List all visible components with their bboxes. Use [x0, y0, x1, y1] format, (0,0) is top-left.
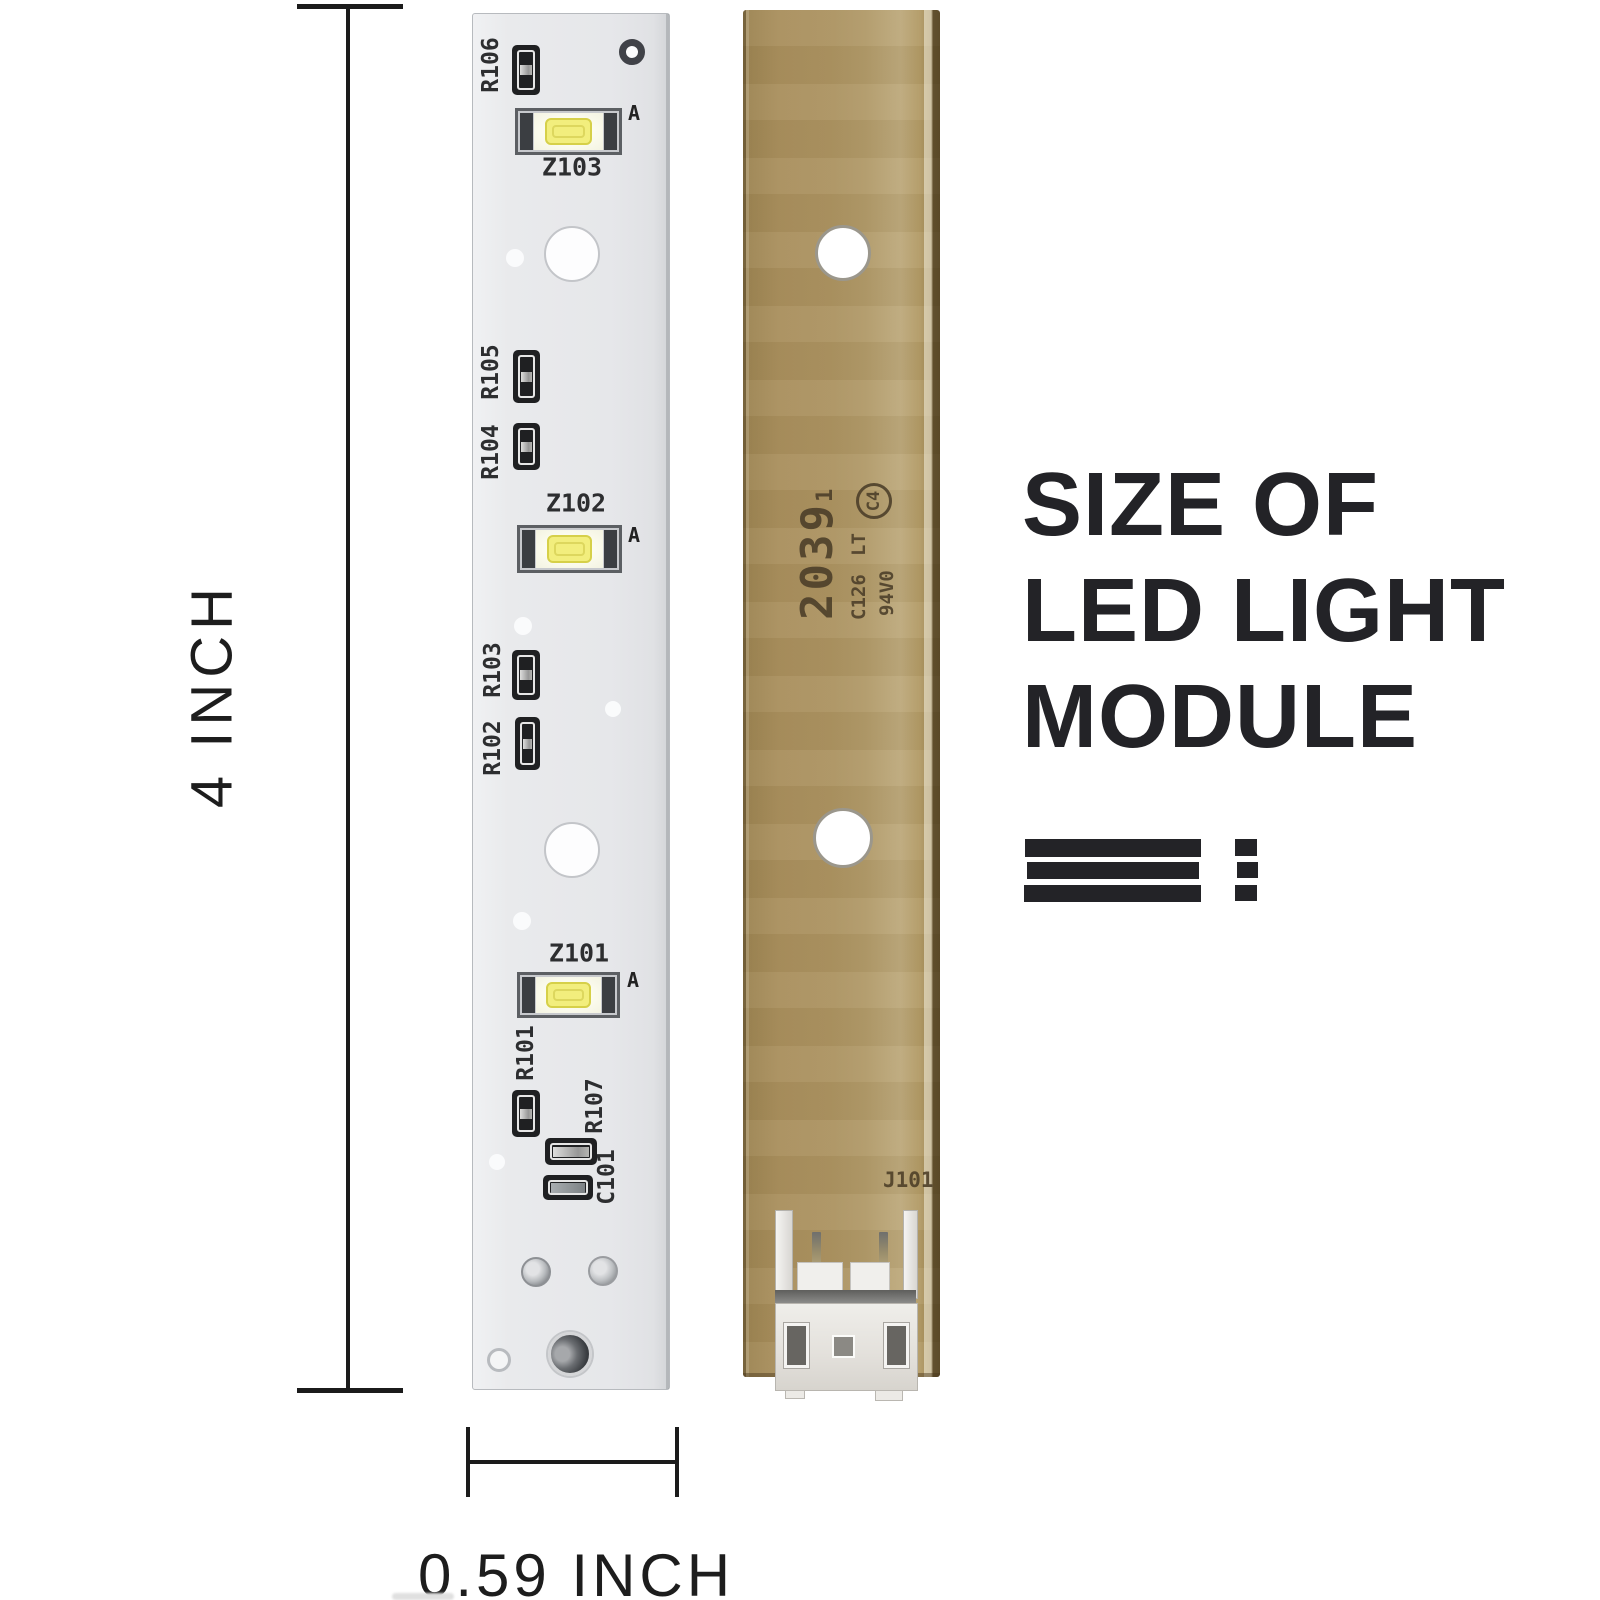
height-dimension-cap-bottom [297, 1388, 403, 1393]
width-dimension-label: 0.59 INCH [418, 1541, 734, 1600]
ref-r105: R105 [478, 344, 504, 399]
solder-pad [521, 1257, 551, 1287]
led-electrode [522, 530, 535, 568]
led-electrode [602, 977, 615, 1013]
led-phosphor [536, 977, 601, 1013]
title-line-3: MODULE [1022, 664, 1506, 770]
ref-c101: C101 [594, 1149, 620, 1204]
resistor-r106 [512, 45, 540, 95]
connector-base-band [775, 1290, 916, 1303]
led-phosphor [536, 530, 603, 568]
back-board-hole [815, 225, 871, 281]
connector-side-wall [903, 1210, 918, 1299]
connector-j101 [775, 1210, 918, 1400]
screw-hole [548, 1332, 592, 1376]
decoration-square [1235, 839, 1257, 856]
anode-mark-z103: A [628, 101, 640, 125]
reflection-dot [506, 249, 524, 267]
height-dimension-label: 4 INCH [179, 582, 246, 808]
date-code-marking: 20391 [792, 486, 843, 620]
reflection-dot [605, 701, 621, 717]
led-electrode [604, 113, 617, 150]
reflection-dot [513, 912, 531, 930]
height-dimension-cap-top [297, 4, 403, 9]
led-electrode [604, 530, 617, 568]
led-z102 [517, 525, 622, 573]
connector-slot [784, 1323, 809, 1368]
certification-mark: C4 [856, 483, 892, 519]
height-dimension-line [346, 6, 350, 1390]
led-electrode [520, 113, 533, 150]
width-dimension-tick-right [675, 1427, 679, 1497]
connector-tab [875, 1390, 903, 1401]
ref-r106: R106 [478, 37, 504, 92]
resistor-r105 [513, 350, 540, 403]
resistor-r102 [515, 717, 540, 770]
ref-r104: R104 [478, 424, 504, 479]
cutoff-artifact [392, 1593, 454, 1600]
lot-code-marking: C126 [848, 574, 870, 620]
connector-tab [785, 1390, 805, 1399]
decoration-bar [1025, 839, 1201, 857]
decoration-bar [1024, 885, 1201, 902]
ref-r107: R107 [582, 1078, 608, 1133]
ref-r103: R103 [480, 642, 506, 697]
decoration-bar [1027, 862, 1199, 879]
resistor-r103 [512, 650, 540, 700]
decoration-square [1235, 885, 1257, 901]
ref-z101: Z101 [549, 939, 609, 968]
led-emitter [545, 118, 592, 145]
connector-pin-housing [850, 1262, 890, 1291]
resistor-r104 [513, 423, 540, 470]
page-title: SIZE OF LED LIGHT MODULE [1022, 452, 1506, 770]
title-line-1: SIZE OF [1022, 452, 1506, 558]
mounting-pad [619, 39, 645, 65]
ref-j101: J101 [883, 1168, 934, 1192]
solder-pad [588, 1256, 618, 1286]
flammability-marking: 94V0 [876, 570, 898, 616]
led-z101 [517, 972, 620, 1018]
title-line-2: LED LIGHT [1022, 558, 1506, 664]
connector-slot [884, 1323, 909, 1368]
board-hole-small [487, 1348, 511, 1372]
connector-side-wall [775, 1210, 793, 1299]
decoration-square [1237, 862, 1258, 878]
back-board-hole [813, 808, 873, 868]
reflection-dot [489, 1154, 505, 1170]
led-emitter [547, 535, 593, 563]
ref-z103: Z103 [542, 153, 602, 182]
width-dimension-line [468, 1460, 677, 1464]
led-phosphor [534, 113, 603, 150]
anode-mark-z102: A [628, 523, 640, 547]
resistor-r107 [545, 1138, 597, 1165]
ref-z102: Z102 [546, 489, 606, 518]
capacitor-c101 [543, 1175, 593, 1200]
ref-r101: R101 [513, 1025, 539, 1080]
led-electrode [522, 977, 535, 1013]
board-hole [544, 822, 600, 878]
back-board-markings: 20391 C126 LT C4 94V0 [800, 470, 912, 620]
board-hole [544, 226, 600, 282]
ref-r102: R102 [480, 720, 506, 775]
anode-mark-z101: A [627, 968, 639, 992]
reflection-dot [514, 617, 532, 635]
led-z103 [515, 108, 622, 155]
led-module-product-image: 4 INCH 0.59 INCH R106 R105 R104 R103 R10… [0, 0, 1600, 1600]
resistor-r101 [512, 1090, 540, 1137]
connector-pin-housing [797, 1262, 843, 1291]
connector-latch-hole [832, 1335, 855, 1358]
width-dimension-tick-left [466, 1427, 470, 1497]
lt-marking: LT [848, 533, 870, 556]
led-emitter [546, 982, 590, 1009]
